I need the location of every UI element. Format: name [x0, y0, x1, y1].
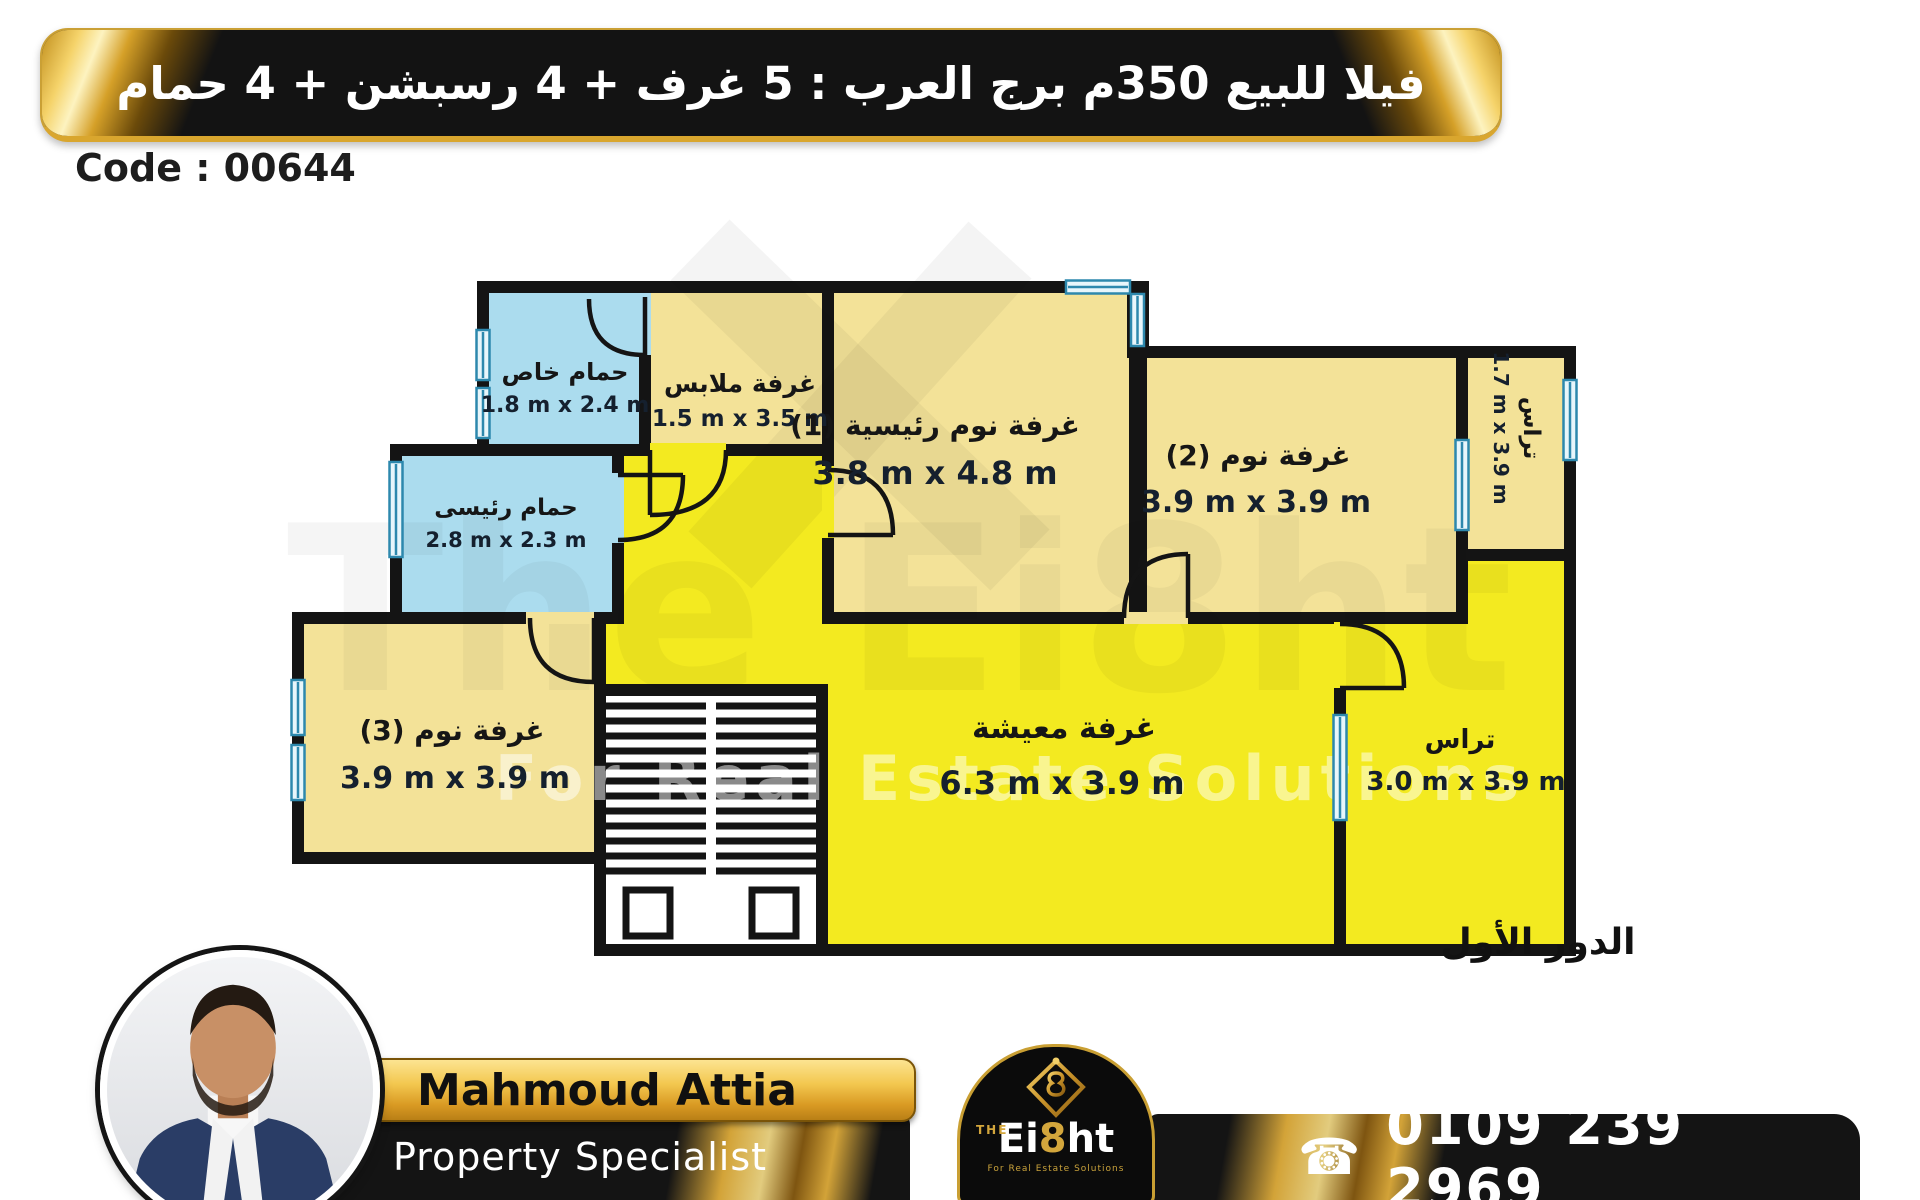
dims-terrace-back: 3.0 m x 3.9 m	[1366, 767, 1565, 797]
brand-logo-tagline: For Real Estate Solutions	[960, 1164, 1152, 1174]
phone-block: ☎ 0109 239 2969	[1148, 1114, 1860, 1200]
brand-logo-the: THE	[976, 1123, 1008, 1137]
floor-label: الدور الأول	[1440, 919, 1635, 963]
agent-name: Mahmoud Attia	[417, 1065, 797, 1116]
dims-living: 6.3 m x 3.9 m	[939, 764, 1184, 802]
flyer: فيلا للبيع 350م برج العرب : 5 غرف + 4 رس…	[0, 0, 1920, 1200]
dims-bedroom-2: 3.9 m x 3.9 m	[1141, 485, 1371, 520]
label-bedroom-3: غرفة نوم (3)	[359, 714, 544, 747]
label-dressing: غرفة ملابس	[664, 369, 816, 399]
agent-portrait	[107, 957, 359, 1200]
label-living: غرفة معيشة	[972, 711, 1156, 746]
label-bedroom-2: غرفة نوم (2)	[1165, 439, 1350, 472]
dims-private-bathroom: 1.8 m x 2.4 m	[481, 393, 650, 418]
dims-bedroom-3: 3.9 m x 3.9 m	[340, 761, 570, 796]
agent-name-ribbon: Mahmoud Attia	[298, 1058, 916, 1122]
dims-terrace-side: 1.7 m x 3.9 m	[1489, 351, 1513, 504]
dims-main-bathroom: 2.8 m x 2.3 m	[426, 528, 587, 552]
phone-icon: ☎	[1298, 1132, 1360, 1182]
label-terrace-side: تراس	[1518, 397, 1544, 460]
phone-number: 0109 239 2969	[1386, 1114, 1860, 1200]
label-terrace-back: تراس	[1425, 725, 1496, 755]
dims-master-bedroom: 3.8 m x 4.8 m	[812, 454, 1057, 492]
label-private-bathroom: حمام خاص	[502, 358, 629, 386]
label-master-bedroom: غرفة نوم رئيسية (1)	[790, 409, 1080, 442]
footer-bar-right: ☎ 0109 239 2969	[1148, 1114, 1860, 1200]
label-main-bathroom: حمام رئيسى	[434, 495, 577, 521]
brand-logo-icon	[1021, 1057, 1091, 1119]
